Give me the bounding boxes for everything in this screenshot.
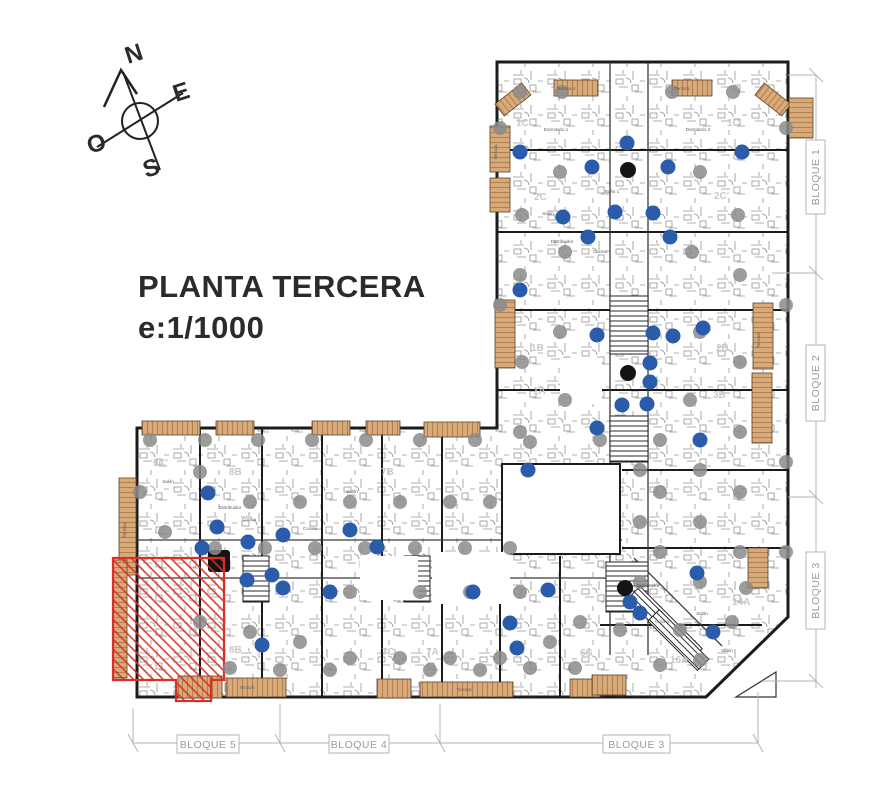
utility-dot-blue bbox=[646, 206, 661, 221]
utility-dot-gray bbox=[443, 651, 457, 665]
room-label: Dormitorio 1 bbox=[544, 127, 569, 132]
utility-dot-blue bbox=[643, 356, 658, 371]
utility-dot-blue bbox=[521, 463, 536, 478]
utility-dot-blue bbox=[693, 433, 708, 448]
utility-dot-gray bbox=[133, 485, 147, 499]
room-label: Distribuidor bbox=[219, 505, 242, 510]
unit-label: 2B bbox=[716, 343, 729, 354]
utility-dot-gray bbox=[473, 663, 487, 677]
utility-dot-gray bbox=[673, 623, 687, 637]
utility-dot-gray bbox=[413, 585, 427, 599]
utility-dot-blue bbox=[343, 523, 358, 538]
utility-dot-gray bbox=[779, 121, 793, 135]
courtyard-notch bbox=[502, 464, 620, 554]
terrace bbox=[312, 421, 350, 435]
unit-label: 6C bbox=[580, 648, 593, 659]
compass-east-label: E bbox=[170, 77, 194, 108]
stair-core bbox=[610, 296, 648, 354]
terrace bbox=[377, 679, 411, 698]
utility-dot-gray bbox=[408, 541, 422, 555]
utility-dot-blue bbox=[503, 616, 518, 631]
unit-label: 7C bbox=[382, 647, 395, 658]
unit-label: 3B bbox=[713, 390, 726, 401]
utility-dot-gray bbox=[305, 433, 319, 447]
utility-dot-blue bbox=[735, 145, 750, 160]
utility-dot-gray bbox=[653, 658, 667, 672]
highlighted-unit-layer bbox=[113, 558, 224, 701]
utility-dot-blue bbox=[513, 145, 528, 160]
utility-dot-blue bbox=[241, 535, 256, 550]
floor-plan-svg: N E O S bbox=[0, 0, 885, 798]
utility-dot-blue bbox=[265, 568, 280, 583]
room-label: Cocina bbox=[593, 249, 608, 254]
room-label: Terraza bbox=[756, 332, 761, 348]
utility-dot-blue bbox=[323, 585, 338, 600]
room-label: Salón bbox=[542, 211, 554, 216]
utility-dot-gray bbox=[343, 651, 357, 665]
utility-dot-gray bbox=[513, 85, 527, 99]
terrace bbox=[226, 678, 286, 697]
room-label: Salón bbox=[721, 648, 733, 653]
utility-dot-gray bbox=[733, 485, 747, 499]
unit-label: 2C' bbox=[714, 191, 729, 202]
utility-dot-blue bbox=[590, 421, 605, 436]
room-label: Terraza 2 bbox=[557, 86, 576, 91]
utility-dot-blue bbox=[696, 321, 711, 336]
stair-core bbox=[610, 416, 648, 462]
highlighted-unit[interactable] bbox=[113, 558, 224, 701]
utility-dot-gray bbox=[193, 615, 207, 629]
utility-dot-gray bbox=[443, 495, 457, 509]
utility-dot-blue bbox=[276, 528, 291, 543]
utility-dot-blue bbox=[646, 326, 661, 341]
room-label: Distribuidor bbox=[637, 583, 660, 588]
utility-dot-blue bbox=[240, 573, 255, 588]
utility-dot-gray bbox=[515, 208, 529, 222]
unit-label: 1C bbox=[727, 118, 740, 129]
elevator-dot bbox=[617, 580, 633, 596]
utility-dot-blue bbox=[666, 329, 681, 344]
utility-dot-gray bbox=[733, 268, 747, 282]
terrace bbox=[366, 421, 400, 435]
room-label: Dormitorio 2 bbox=[686, 127, 711, 132]
utility-dot-blue bbox=[663, 230, 678, 245]
utility-dot-gray bbox=[733, 545, 747, 559]
utility-dot-gray bbox=[493, 298, 507, 312]
unit-label: 1B bbox=[531, 343, 544, 354]
utility-dot-blue bbox=[706, 625, 721, 640]
compass-rose: N E O S bbox=[84, 39, 194, 184]
utility-dot-blue bbox=[661, 160, 676, 175]
elevator-dot bbox=[620, 162, 636, 178]
utility-dot-blue bbox=[466, 585, 481, 600]
utility-dot-gray bbox=[483, 495, 497, 509]
bloque-label: BLOQUE 1 bbox=[810, 149, 822, 206]
utility-dot-gray bbox=[653, 433, 667, 447]
utility-dot-gray bbox=[726, 85, 740, 99]
utility-dot-gray bbox=[423, 663, 437, 677]
utility-dot-gray bbox=[653, 545, 667, 559]
bloque-label: BLOQUE 3 bbox=[608, 739, 665, 751]
utility-dot-gray bbox=[779, 455, 793, 469]
utility-dot-gray bbox=[223, 661, 237, 675]
terrace bbox=[490, 178, 510, 212]
utility-dot-blue bbox=[643, 375, 658, 390]
utility-dot-gray bbox=[693, 463, 707, 477]
unit-label: 2C bbox=[534, 192, 547, 203]
utility-dot-gray bbox=[293, 495, 307, 509]
utility-dot-gray bbox=[513, 425, 527, 439]
utility-dot-blue bbox=[195, 541, 210, 556]
compass-north-label: N bbox=[122, 39, 147, 70]
room-label: Cocina bbox=[242, 517, 257, 522]
unit-label: 1C' bbox=[516, 118, 531, 129]
utility-dot-gray bbox=[653, 485, 667, 499]
room-label: Cocina bbox=[303, 526, 318, 531]
utility-dot-gray bbox=[251, 433, 265, 447]
utility-dot-gray bbox=[493, 651, 507, 665]
room-label: Salón bbox=[162, 479, 174, 484]
bloque-label: BLOQUE 2 bbox=[810, 355, 822, 412]
utility-dot-gray bbox=[158, 525, 172, 539]
unit-label: 7A bbox=[426, 647, 439, 658]
utility-dot-gray bbox=[359, 433, 373, 447]
terrace bbox=[216, 421, 254, 435]
bloque-label: BLOQUE 4 bbox=[331, 739, 388, 751]
terrace bbox=[142, 421, 200, 435]
utility-dot-gray bbox=[493, 121, 507, 135]
utility-dot-blue bbox=[276, 581, 291, 596]
unit-label: 8B bbox=[229, 645, 242, 656]
utility-dot-gray bbox=[633, 515, 647, 529]
utility-dot-gray bbox=[393, 495, 407, 509]
unit-label: 7B bbox=[381, 467, 394, 478]
utility-dot-gray bbox=[323, 663, 337, 677]
utility-dot-gray bbox=[733, 355, 747, 369]
utility-dot-gray bbox=[779, 298, 793, 312]
room-label: Cocina bbox=[655, 619, 670, 624]
terrace bbox=[592, 675, 626, 695]
floor-plan-sheet: PLANTA TERCERA e:1/1000 bbox=[0, 0, 885, 798]
utility-dot-gray bbox=[343, 585, 357, 599]
room-label: Terraza bbox=[493, 144, 498, 160]
utility-dot-gray bbox=[413, 433, 427, 447]
utility-dot-gray bbox=[613, 623, 627, 637]
utility-dot-gray bbox=[553, 325, 567, 339]
utility-dot-gray bbox=[693, 515, 707, 529]
utility-dot-gray bbox=[458, 541, 472, 555]
utility-dot-gray bbox=[523, 661, 537, 675]
utility-dot-gray bbox=[693, 653, 707, 667]
utility-dot-blue bbox=[210, 520, 225, 535]
compass-south-label: S bbox=[140, 153, 164, 184]
elevator-dot bbox=[620, 365, 636, 381]
utility-dot-gray bbox=[683, 393, 697, 407]
utility-dot-blue bbox=[608, 205, 623, 220]
utility-dot-gray bbox=[543, 635, 557, 649]
utility-dot-blue bbox=[623, 595, 638, 610]
room-label: Distribuidor bbox=[551, 239, 574, 244]
terrace bbox=[789, 98, 813, 138]
utility-dot-blue bbox=[556, 210, 571, 225]
room-label: Terraza bbox=[674, 86, 690, 91]
utility-dot-gray bbox=[685, 245, 699, 259]
utility-dot-gray bbox=[308, 541, 322, 555]
utility-dot-gray bbox=[243, 495, 257, 509]
utility-dot-gray bbox=[273, 663, 287, 677]
utility-dot-gray bbox=[568, 661, 582, 675]
utility-dot-gray bbox=[208, 541, 222, 555]
corner-triangle bbox=[736, 672, 776, 697]
utility-dot-blue bbox=[513, 283, 528, 298]
room-label: Terraza bbox=[239, 685, 255, 690]
utility-dot-gray bbox=[731, 208, 745, 222]
utility-dot-gray bbox=[515, 355, 529, 369]
utility-dot-gray bbox=[293, 635, 307, 649]
unit-label: 14A bbox=[732, 597, 750, 608]
utility-dot-gray bbox=[393, 651, 407, 665]
room-label: Salón bbox=[346, 489, 358, 494]
utility-dot-gray bbox=[503, 541, 517, 555]
utility-dot-blue bbox=[510, 641, 525, 656]
utility-dot-blue bbox=[690, 566, 705, 581]
utility-dot-gray bbox=[343, 495, 357, 509]
building-plan bbox=[137, 62, 788, 697]
utility-dot-gray bbox=[573, 615, 587, 629]
room-label: Baño 1 bbox=[605, 189, 620, 194]
utility-dot-blue bbox=[541, 583, 556, 598]
utility-dot-blue bbox=[585, 160, 600, 175]
utility-dot-blue bbox=[615, 398, 630, 413]
bloque-label: BLOQUE 3 bbox=[810, 562, 822, 619]
room-label: Salón bbox=[696, 611, 708, 616]
utility-dot-blue bbox=[255, 638, 270, 653]
room-label: Terraza bbox=[122, 522, 127, 538]
utility-dot-gray bbox=[725, 615, 739, 629]
utility-dot-gray bbox=[513, 268, 527, 282]
lightwell bbox=[360, 556, 418, 600]
utility-dot-gray bbox=[558, 393, 572, 407]
utility-dot-gray bbox=[523, 435, 537, 449]
utility-dot-gray bbox=[633, 463, 647, 477]
north-arrow-icon bbox=[104, 70, 137, 107]
utility-dot-blue bbox=[370, 540, 385, 555]
terrace bbox=[748, 548, 768, 588]
utility-dot-gray bbox=[733, 425, 747, 439]
bloque-label: BLOQUE 5 bbox=[180, 739, 237, 751]
utility-dot-gray bbox=[198, 433, 212, 447]
utility-dot-gray bbox=[243, 625, 257, 639]
utility-dot-gray bbox=[513, 585, 527, 599]
utility-dot-gray bbox=[258, 541, 272, 555]
compass-west-label: O bbox=[84, 128, 110, 159]
utility-dot-gray bbox=[693, 165, 707, 179]
utility-dot-gray bbox=[739, 581, 753, 595]
room-label: Terraza bbox=[456, 687, 472, 692]
utility-dot-gray bbox=[143, 433, 157, 447]
unit-label: 16A bbox=[670, 655, 688, 666]
utility-dot-blue bbox=[620, 136, 635, 151]
utility-dot-gray bbox=[193, 465, 207, 479]
terrace bbox=[752, 373, 772, 443]
utility-dot-blue bbox=[581, 230, 596, 245]
unit-label: 1A bbox=[533, 386, 546, 397]
utility-dot-gray bbox=[553, 165, 567, 179]
unit-label: 9C' bbox=[153, 458, 168, 469]
utility-dot-gray bbox=[558, 245, 572, 259]
utility-dot-gray bbox=[779, 545, 793, 559]
utility-dot-blue bbox=[640, 397, 655, 412]
unit-label: 8B bbox=[229, 467, 242, 478]
utility-dot-blue bbox=[590, 328, 605, 343]
utility-dot-blue bbox=[201, 486, 216, 501]
utility-dot-gray bbox=[468, 433, 482, 447]
